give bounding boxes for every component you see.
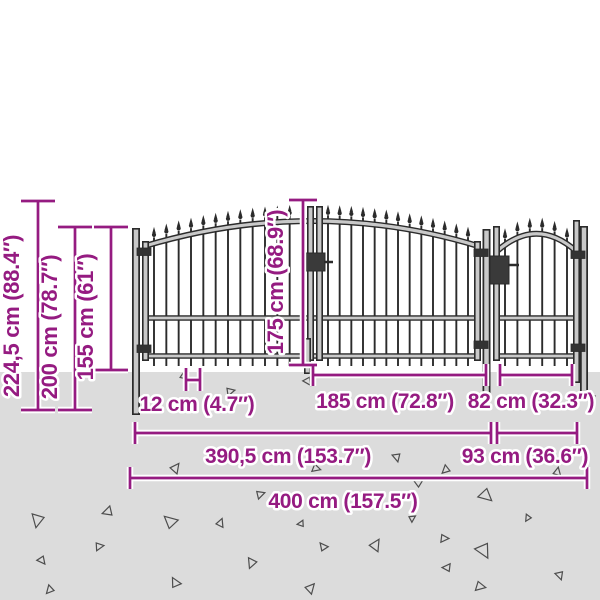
label-post-height: 200 cm (78.7″) (37, 255, 62, 400)
picket-spear-tip (553, 221, 557, 228)
picket-spear-tip (226, 211, 230, 218)
picket-ball (251, 214, 255, 218)
picket-ball (164, 229, 168, 233)
picket-ball (238, 215, 242, 219)
picket-spear-tip (408, 213, 412, 220)
picket-ball (540, 223, 544, 227)
picket-spear-tip (466, 227, 470, 234)
picket-spear-tip (528, 218, 532, 225)
picket-spear-tip (326, 205, 330, 212)
picket-spear-tip (189, 218, 193, 225)
picket-spear-tip (420, 215, 424, 222)
hinge (474, 341, 488, 349)
picket-ball (454, 229, 458, 233)
label-fence-height: 155 cm (61″) (73, 254, 98, 381)
label-side-gate-width: 93 cm (36.6″) (462, 445, 588, 468)
picket-spear-tip (455, 223, 459, 230)
picket-spear-tip (396, 211, 400, 218)
product-dimension-diagram: 224,5 cm (88.4″) 200 cm (78.7″) 155 cm (… (0, 0, 600, 600)
picket-spear-tip (516, 221, 520, 228)
gate-latch (305, 253, 325, 271)
picket-ball (288, 211, 292, 215)
picket-ball (177, 226, 181, 230)
picket-spear-tip (503, 228, 507, 235)
picket-ball (408, 219, 412, 223)
picket-spear-tip (152, 227, 156, 234)
picket-spear-tip (431, 218, 435, 225)
picket-spear-tip (373, 208, 377, 215)
picket-ball (226, 217, 230, 221)
label-total-width: 400 cm (157.5″) (268, 490, 417, 513)
label-gate-height: 175 cm (68.9″) (263, 210, 288, 355)
hinge (571, 251, 585, 259)
picket-ball (515, 227, 519, 231)
picket-ball (396, 217, 400, 221)
picket-ball (326, 211, 330, 215)
label-main-gate-width: 390,5 cm (153.7″) (205, 445, 371, 468)
picket-spear-tip (239, 209, 243, 216)
hinge (137, 248, 151, 256)
wicket-lock (490, 256, 509, 284)
picket-spear-tip (165, 224, 169, 231)
picket-ball (338, 211, 342, 215)
label-total-height: 224,5 cm (88.4″) (0, 235, 24, 397)
picket-spear-tip (251, 208, 255, 215)
picket-spear-tip (350, 206, 354, 213)
picket-spear-tip (540, 218, 544, 225)
picket-ball (528, 224, 532, 228)
picket-ball (349, 212, 353, 216)
hinge (571, 344, 585, 352)
picket-ball (431, 224, 435, 228)
hinge (474, 249, 488, 257)
hinge (137, 345, 151, 353)
picket-spear-tip (443, 220, 447, 227)
picket-spear-tip (202, 215, 206, 222)
picket-ball (152, 233, 156, 237)
picket-ball (565, 233, 569, 237)
picket-ball (443, 226, 447, 230)
picket-spear-tip (565, 228, 569, 235)
picket-ball (384, 215, 388, 219)
picket-ball (553, 227, 557, 231)
picket-ball (201, 221, 205, 225)
picket-ball (419, 221, 423, 225)
picket-spear-tip (177, 220, 181, 227)
picket-ball (503, 234, 507, 238)
picket-spear-tip (288, 205, 292, 212)
label-door-width: 185 cm (72.8″) (316, 390, 454, 413)
label-picket-spacing: 12 cm (4.7″) (139, 393, 254, 416)
picket-spear-tip (361, 207, 365, 214)
picket-ball (214, 219, 218, 223)
picket-spear-tip (338, 205, 342, 212)
diagram-canvas: 224,5 cm (88.4″) 200 cm (78.7″) 155 cm (… (0, 0, 600, 600)
label-wicket-width: 82 cm (32.3″) (468, 390, 594, 413)
picket-ball (373, 214, 377, 218)
picket-spear-tip (214, 213, 218, 220)
picket-ball (466, 232, 470, 236)
picket-ball (361, 213, 365, 217)
picket-ball (189, 223, 193, 227)
picket-spear-tip (385, 210, 389, 217)
